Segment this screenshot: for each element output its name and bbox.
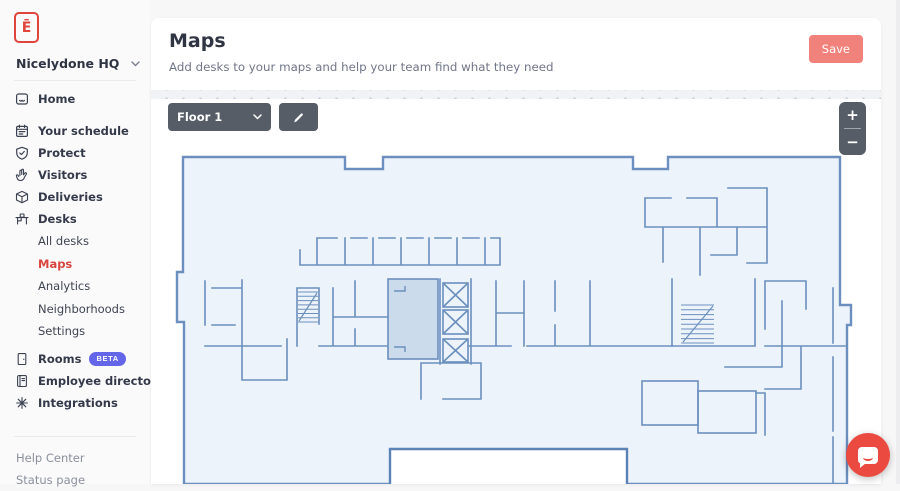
floor-plan-outline	[177, 157, 851, 484]
subitem-label: Maps	[38, 257, 72, 271]
org-switcher[interactable]: Nicelydone HQ	[16, 56, 140, 71]
home-icon	[15, 92, 29, 106]
zoom-in-button[interactable]: +	[839, 102, 866, 128]
save-button[interactable]: Save	[809, 35, 863, 63]
sidebar-subitem-all-desks[interactable]: All desks	[0, 230, 150, 253]
app-window: Ē Nicelydone HQ Home	[0, 0, 900, 484]
beta-badge: BETA	[89, 352, 125, 366]
page-title: Maps	[169, 30, 226, 52]
shaded-room	[388, 279, 438, 359]
shield-icon	[15, 146, 29, 160]
edit-map-button[interactable]	[279, 103, 318, 131]
status-page-link[interactable]: Status page	[0, 469, 150, 491]
help-center-link[interactable]: Help Center	[0, 447, 150, 469]
sidebar-subitem-neighborhoods[interactable]: Neighborhoods	[0, 298, 150, 321]
scrollbar-track[interactable]	[896, 0, 900, 484]
sidebar-item-home[interactable]: Home	[0, 88, 150, 110]
subitem-label: Analytics	[38, 279, 90, 293]
hand-icon	[15, 168, 29, 182]
sidebar-item-your-schedule[interactable]: Your schedule	[0, 120, 150, 142]
sidebar-item-integrations[interactable]: Integrations	[0, 392, 150, 414]
notebook-icon	[15, 374, 29, 388]
sidebar-item-label: Visitors	[38, 168, 87, 182]
subitem-label: All desks	[38, 234, 89, 248]
sidebar-item-label: Protect	[38, 146, 86, 160]
sidebar-item-desks[interactable]: Desks	[0, 208, 150, 230]
logo-glyph: Ē	[22, 20, 32, 36]
zoom-out-button[interactable]: −	[839, 129, 866, 155]
page-subtitle: Add desks to your maps and help your tea…	[169, 60, 553, 74]
sidebar: Ē Nicelydone HQ Home	[0, 0, 150, 484]
floor-selector-dropdown[interactable]: Floor 1	[168, 103, 271, 131]
map-ruler	[151, 90, 881, 99]
sidebar-subitem-analytics[interactable]: Analytics	[0, 275, 150, 298]
calendar-icon	[15, 124, 29, 138]
sidebar-item-employee-directory[interactable]: Employee directory	[0, 370, 150, 392]
chat-bubble-icon	[858, 447, 878, 464]
sidebar-nav: Home Your schedule Protect	[0, 88, 150, 414]
pencil-icon	[292, 111, 305, 124]
sidebar-item-protect[interactable]: Protect	[0, 142, 150, 164]
chevron-down-icon	[253, 114, 262, 120]
sidebar-item-deliveries[interactable]: Deliveries	[0, 186, 150, 208]
sidebar-item-label: Rooms	[38, 352, 81, 366]
sidebar-item-rooms[interactable]: Rooms BETA	[0, 348, 150, 370]
map-canvas[interactable]: Floor 1 + −	[151, 99, 881, 484]
bottom-large-room	[390, 449, 627, 484]
chat-launcher-button[interactable]	[846, 433, 890, 477]
elevator-shafts	[443, 283, 468, 362]
footer-link-label: Help Center	[16, 451, 85, 465]
sidebar-item-label: Employee directory	[38, 374, 164, 388]
subitem-label: Neighborhoods	[38, 302, 125, 316]
floor-plan[interactable]	[151, 99, 881, 484]
footer-link-label: Status page	[16, 473, 85, 487]
floor-selector-label: Floor 1	[177, 110, 222, 124]
org-name: Nicelydone HQ	[16, 56, 119, 71]
envoy-logo-icon[interactable]: Ē	[14, 12, 39, 43]
package-icon	[15, 190, 29, 204]
sidebar-divider	[14, 436, 136, 437]
subitem-label: Settings	[38, 324, 85, 338]
sidebar-item-visitors[interactable]: Visitors	[0, 164, 150, 186]
sidebar-item-label: Desks	[38, 212, 77, 226]
door-icon	[15, 352, 29, 366]
main-panel: Maps Add desks to your maps and help you…	[151, 18, 881, 484]
sidebar-subitem-settings[interactable]: Settings	[0, 320, 150, 343]
sidebar-item-label: Integrations	[38, 396, 118, 410]
sidebar-item-label: Deliveries	[38, 190, 103, 204]
sidebar-item-label: Home	[38, 92, 75, 106]
zoom-control: + −	[839, 102, 866, 155]
sparkle-icon	[15, 396, 29, 410]
sidebar-subitem-maps[interactable]: Maps	[0, 253, 150, 276]
desk-icon	[15, 212, 29, 226]
sidebar-divider	[14, 80, 136, 81]
page-header: Maps Add desks to your maps and help you…	[151, 18, 881, 90]
chevron-down-icon	[131, 61, 140, 67]
sidebar-item-label: Your schedule	[38, 124, 129, 138]
